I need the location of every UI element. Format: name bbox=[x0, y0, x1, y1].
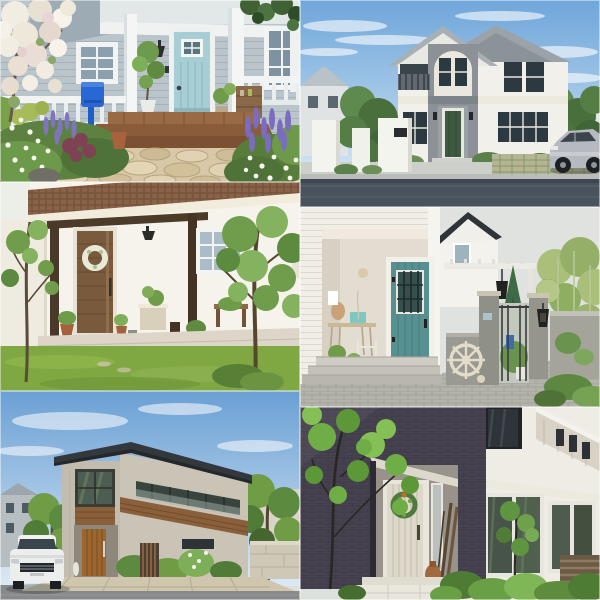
open-gate-garden bbox=[499, 303, 529, 383]
door-grille-window bbox=[397, 271, 423, 313]
balcony bbox=[398, 64, 430, 90]
upper-dark-window bbox=[484, 407, 522, 449]
whitewashed-door bbox=[383, 480, 429, 587]
neighbor-modern-house bbox=[478, 407, 600, 600]
photo-tile-dark-brick-entry bbox=[300, 407, 600, 600]
photo-tile-gabled-house bbox=[300, 0, 600, 207]
upper-left-window bbox=[75, 469, 115, 507]
teal-door bbox=[386, 257, 434, 371]
lower-right-windows bbox=[498, 112, 548, 142]
string-course bbox=[398, 96, 568, 104]
right-concrete-wall bbox=[550, 311, 600, 379]
front-door bbox=[169, 27, 215, 117]
entry-door bbox=[438, 106, 468, 162]
sky-sliver bbox=[0, 182, 30, 226]
curb bbox=[300, 174, 600, 179]
timber-gate bbox=[140, 543, 159, 577]
gate-pier-right bbox=[527, 293, 550, 379]
entry bbox=[73, 525, 118, 577]
photo-tile-modern-house bbox=[0, 391, 300, 600]
nameplate bbox=[394, 128, 407, 137]
doorbell bbox=[165, 66, 169, 73]
gate-pier-left bbox=[477, 291, 501, 385]
door-sidelight bbox=[431, 483, 443, 571]
asphalt-road bbox=[300, 179, 600, 207]
photo-tile-porch-teal-door bbox=[0, 0, 300, 182]
timber-band-left bbox=[75, 507, 115, 525]
stone-wall-right bbox=[250, 541, 300, 579]
concrete-steps bbox=[302, 357, 442, 384]
photo-collage bbox=[0, 0, 600, 600]
photo-tile-wood-door-porch bbox=[0, 182, 300, 391]
left-window bbox=[76, 42, 118, 84]
photo-tile-coastal-entry bbox=[300, 207, 600, 407]
slot-window bbox=[182, 539, 214, 549]
front-door bbox=[73, 227, 117, 335]
